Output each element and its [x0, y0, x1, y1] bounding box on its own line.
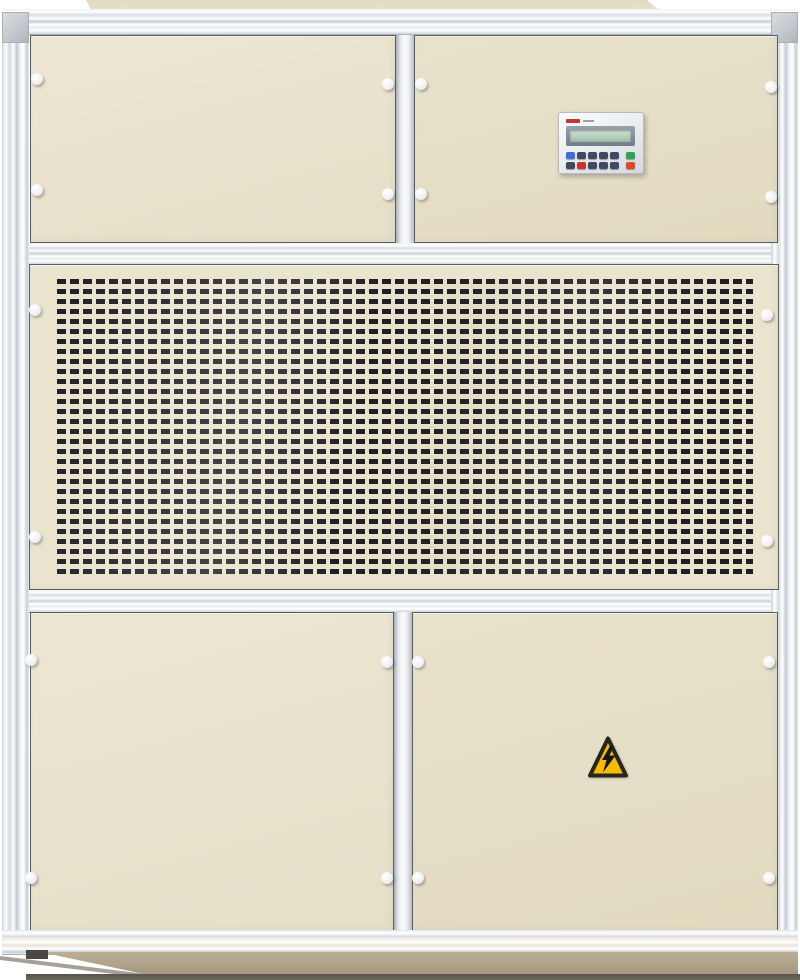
controller-button-navy [566, 162, 575, 169]
brand-logo-mark [566, 119, 580, 123]
grille-perforations [57, 279, 753, 574]
plinth-base [40, 952, 798, 976]
air-intake-grille-panel [29, 264, 779, 590]
controller-button-navy [610, 152, 619, 159]
controller-pad [558, 112, 644, 174]
base-shadow-block [26, 950, 48, 959]
controller-button-navy [588, 162, 597, 169]
frame-mid-rail-upper [29, 243, 771, 265]
frame-mullion-top [396, 35, 414, 243]
controller-button-orange [626, 162, 635, 169]
fastener-knob [761, 535, 773, 547]
bottom-left-access-door [30, 612, 394, 932]
fastener-knob [415, 78, 427, 90]
base-bottom-edge [26, 974, 800, 980]
high-voltage-warning-decal [588, 736, 628, 779]
high-voltage-lightning-icon [588, 736, 628, 779]
controller-button-navy [599, 162, 608, 169]
fastener-knob [25, 872, 37, 884]
controller-button-navy [588, 152, 597, 159]
brand-logo-text-mark [583, 120, 594, 122]
frame-left-rail [2, 12, 29, 954]
frame-bottom-rail [2, 930, 798, 955]
fastener-knob [382, 188, 394, 200]
fastener-knob [381, 872, 393, 884]
frame-mid-rail-lower [29, 590, 771, 613]
fastener-knob [412, 656, 424, 668]
hvac-unit-photo [0, 0, 800, 980]
fastener-knob [415, 188, 427, 200]
controller-button-row-1 [559, 152, 643, 160]
controller-button-row-2 [559, 162, 643, 170]
fastener-knob [381, 656, 393, 668]
controller-button-navy [577, 152, 586, 159]
fastener-knob [761, 309, 773, 321]
frame-mullion-bottom [394, 612, 412, 932]
fastener-knob [765, 81, 777, 93]
fastener-knob [31, 73, 43, 85]
fastener-knob [412, 872, 424, 884]
fastener-knob [763, 656, 775, 668]
controller-button-green [626, 152, 635, 159]
fastener-knob [382, 78, 394, 90]
fastener-knob [765, 191, 777, 203]
fastener-knob [25, 654, 37, 666]
controller-button-blue [566, 152, 575, 159]
controller-button-navy [610, 162, 619, 169]
fastener-knob [31, 184, 43, 196]
fastener-knob [763, 872, 775, 884]
frame-top-rail [2, 9, 798, 35]
frame-corner-top-left [2, 12, 29, 43]
fastener-knob [29, 304, 41, 316]
controller-button-navy [599, 152, 608, 159]
top-left-access-panel [30, 35, 396, 243]
lcd-display-frame [566, 126, 635, 146]
fastener-knob [29, 531, 41, 543]
controller-button-red [577, 162, 586, 169]
lcd-screen [570, 130, 631, 142]
